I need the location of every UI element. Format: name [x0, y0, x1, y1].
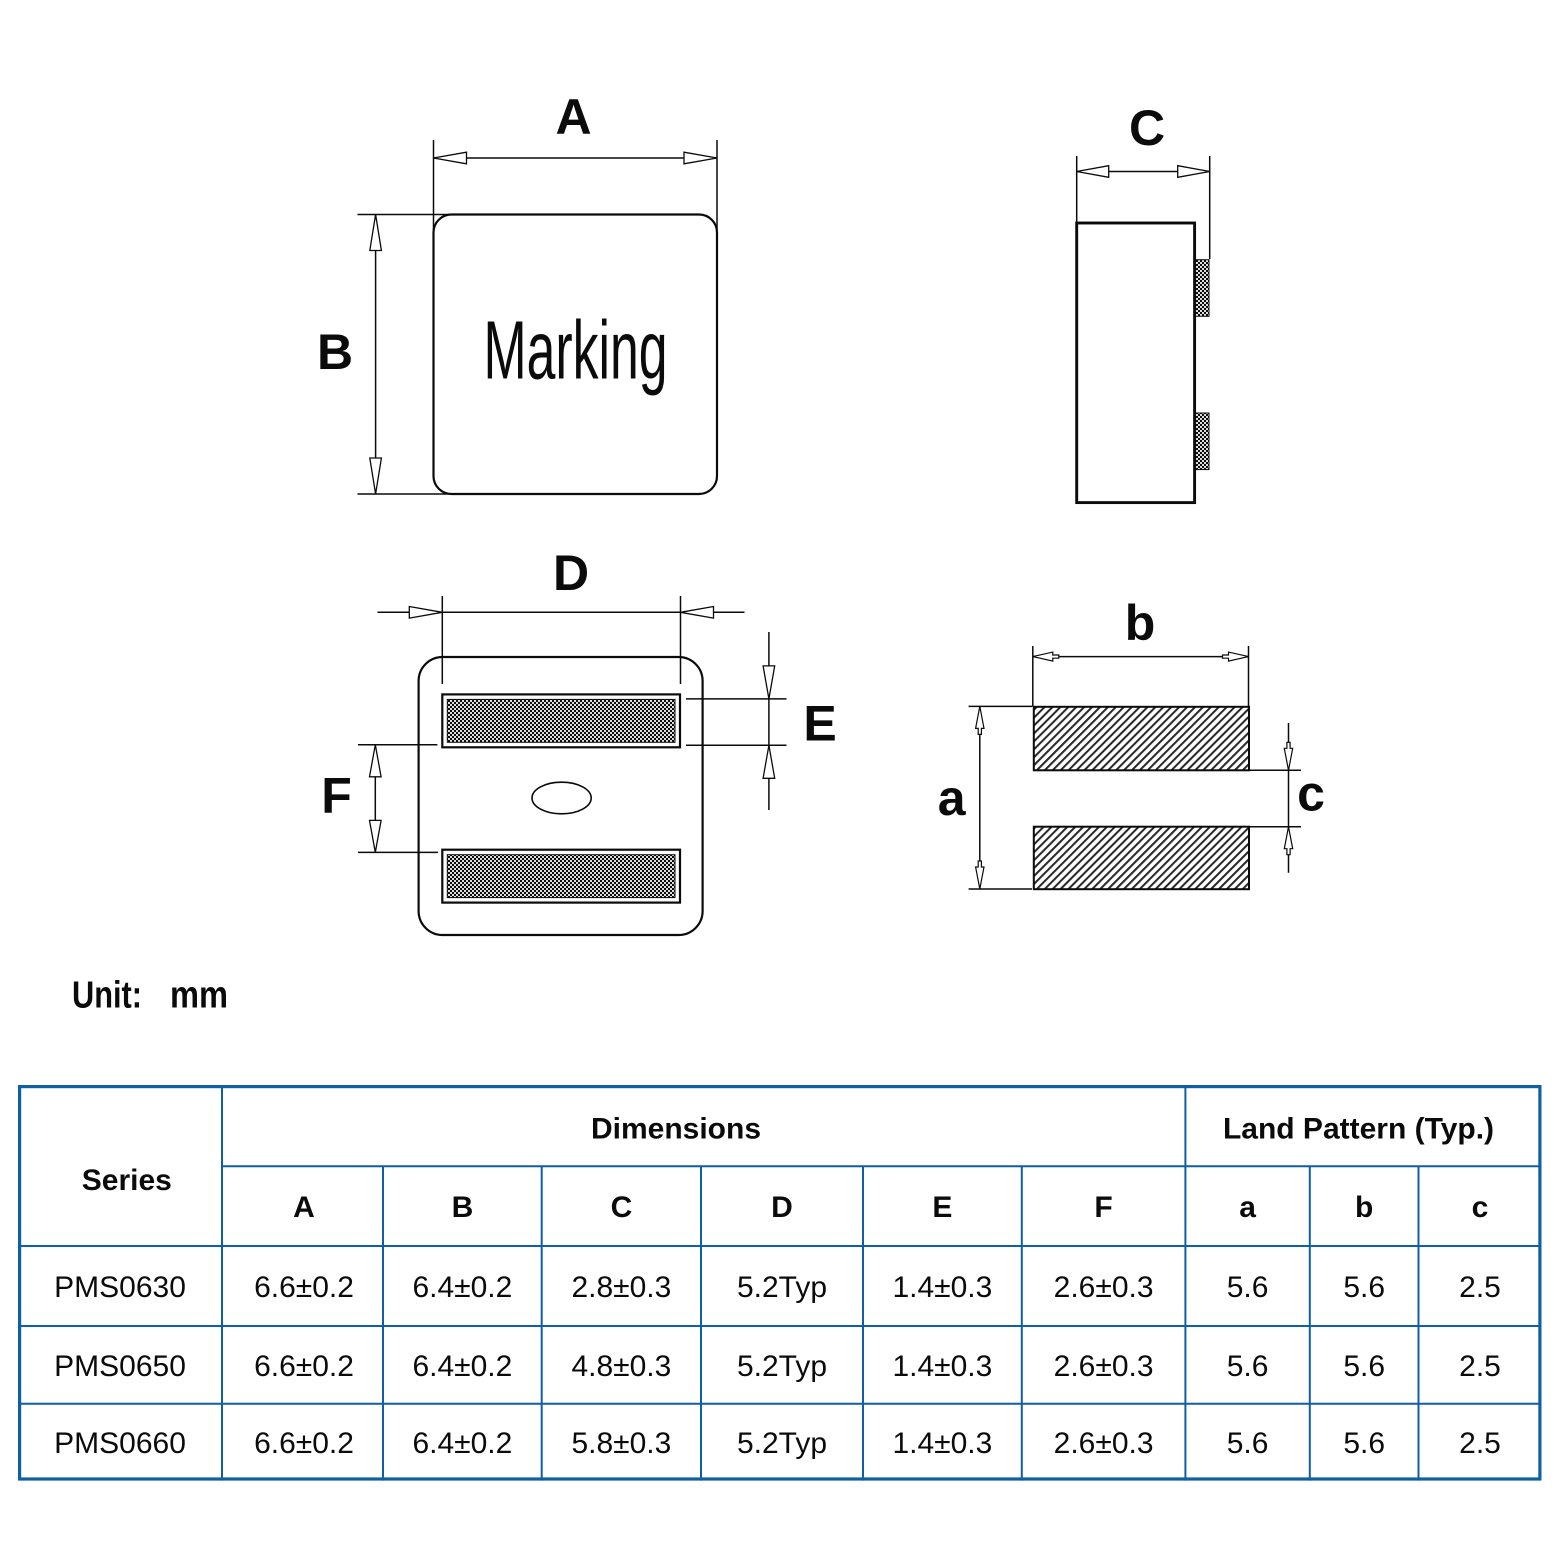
svg-text:A: A — [555, 89, 591, 145]
svg-text:F: F — [1094, 1191, 1112, 1224]
svg-text:2.5: 2.5 — [1459, 1271, 1501, 1304]
svg-text:2.5: 2.5 — [1459, 1427, 1501, 1460]
svg-text:5.2Typ: 5.2Typ — [737, 1427, 827, 1460]
svg-text:6.6±0.2: 6.6±0.2 — [254, 1271, 354, 1304]
svg-text:c: c — [1472, 1191, 1489, 1224]
svg-text:B: B — [317, 324, 353, 380]
svg-text:C: C — [611, 1191, 633, 1224]
svg-text:E: E — [803, 695, 836, 751]
svg-text:PMS0660: PMS0660 — [54, 1427, 186, 1460]
svg-text:Unit:: Unit: — [72, 974, 142, 1016]
svg-text:5.6: 5.6 — [1227, 1271, 1269, 1304]
svg-text:5.6: 5.6 — [1227, 1427, 1269, 1460]
svg-text:c: c — [1297, 765, 1325, 821]
svg-text:6.4±0.2: 6.4±0.2 — [412, 1350, 512, 1383]
svg-text:1.4±0.3: 1.4±0.3 — [892, 1271, 992, 1304]
svg-text:b: b — [1125, 595, 1156, 651]
svg-text:2.8±0.3: 2.8±0.3 — [571, 1271, 671, 1304]
svg-text:D: D — [553, 545, 589, 601]
svg-text:E: E — [932, 1191, 952, 1224]
svg-text:1.4±0.3: 1.4±0.3 — [892, 1427, 992, 1460]
svg-text:2.6±0.3: 2.6±0.3 — [1054, 1350, 1154, 1383]
svg-text:6.6±0.2: 6.6±0.2 — [254, 1350, 354, 1383]
svg-text:B: B — [452, 1191, 474, 1224]
svg-text:F: F — [321, 768, 352, 824]
svg-text:mm: mm — [170, 974, 228, 1016]
svg-text:2.5: 2.5 — [1459, 1350, 1501, 1383]
svg-text:a: a — [938, 770, 967, 826]
svg-text:1.4±0.3: 1.4±0.3 — [892, 1350, 992, 1383]
svg-text:5.8±0.3: 5.8±0.3 — [571, 1427, 671, 1460]
svg-text:PMS0650: PMS0650 — [54, 1350, 186, 1383]
svg-text:6.4±0.2: 6.4±0.2 — [412, 1271, 512, 1304]
svg-text:Dimensions: Dimensions — [591, 1113, 761, 1146]
svg-text:a: a — [1239, 1191, 1256, 1224]
svg-text:PMS0630: PMS0630 — [54, 1271, 186, 1304]
svg-text:D: D — [771, 1191, 793, 1224]
svg-text:5.6: 5.6 — [1343, 1350, 1385, 1383]
svg-text:5.6: 5.6 — [1227, 1350, 1269, 1383]
svg-text:5.2Typ: 5.2Typ — [737, 1350, 827, 1383]
svg-text:Marking: Marking — [484, 304, 668, 397]
svg-text:Series: Series — [82, 1164, 172, 1197]
svg-text:5.6: 5.6 — [1343, 1427, 1385, 1460]
svg-text:2.6±0.3: 2.6±0.3 — [1054, 1271, 1154, 1304]
svg-text:6.6±0.2: 6.6±0.2 — [254, 1427, 354, 1460]
svg-text:2.6±0.3: 2.6±0.3 — [1054, 1427, 1154, 1460]
svg-text:6.4±0.2: 6.4±0.2 — [412, 1427, 512, 1460]
svg-text:Land Pattern (Typ.): Land Pattern (Typ.) — [1223, 1113, 1494, 1146]
svg-text:5.2Typ: 5.2Typ — [737, 1271, 827, 1304]
svg-text:b: b — [1355, 1191, 1373, 1224]
svg-text:4.8±0.3: 4.8±0.3 — [571, 1350, 671, 1383]
svg-text:C: C — [1129, 100, 1165, 156]
svg-text:5.6: 5.6 — [1343, 1271, 1385, 1304]
svg-text:A: A — [293, 1191, 315, 1224]
